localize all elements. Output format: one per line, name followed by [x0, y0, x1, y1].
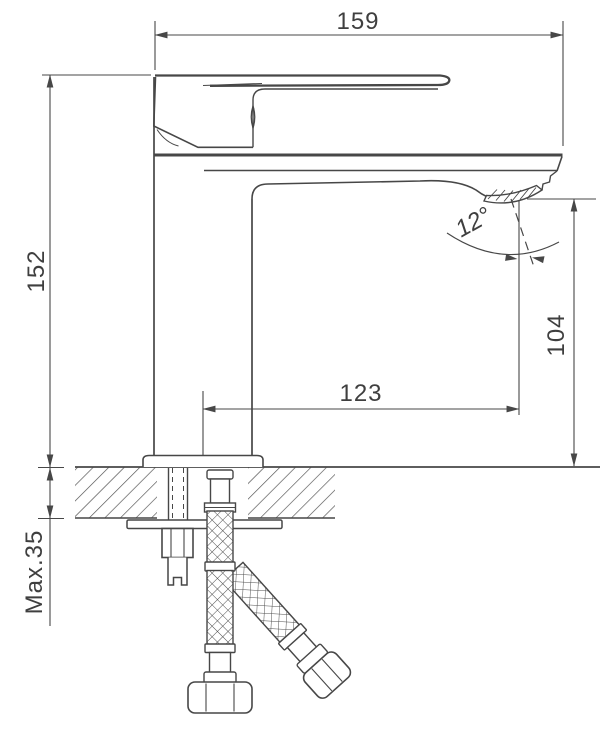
dim-label-spout-angle: 12°	[451, 202, 496, 243]
handle-back-profile	[154, 77, 253, 147]
stud-slotted-end	[168, 558, 187, 586]
aerator	[484, 186, 542, 203]
hose-ferrule	[205, 562, 235, 571]
arc-arrowhead	[531, 254, 544, 263]
spout-underside-curve	[252, 181, 498, 200]
counter-hatch-right	[248, 467, 335, 518]
cartridge-cover-line	[253, 89, 438, 147]
faucet-body	[143, 76, 563, 468]
spout-right-edge	[557, 157, 562, 172]
arc-arrowhead	[505, 254, 518, 263]
washer-plate	[127, 520, 282, 529]
hose-hex-nut	[188, 682, 252, 713]
spout	[154, 155, 563, 203]
dim-label-total-length: 159	[336, 8, 379, 35]
lever-plate	[155, 76, 449, 86]
dim-label-outlet-height: 104	[543, 313, 570, 356]
dim-152-height	[42, 75, 151, 467]
hose-braid	[207, 511, 233, 563]
spout-tip-profile	[542, 171, 557, 190]
handle-lever	[154, 76, 450, 148]
hose-ferrule	[205, 644, 235, 653]
counter-hatch-left	[75, 467, 157, 518]
dim-label-max-thickness: Max.35	[21, 530, 48, 615]
faucet-technical-drawing: 159 152 104 123 12° Max.35	[0, 0, 608, 729]
mounting-stud	[169, 468, 188, 520]
base-flange	[143, 456, 263, 468]
dim-159-total-length	[155, 21, 563, 146]
dim-label-body-height: 152	[23, 249, 50, 292]
hose-braid	[207, 571, 233, 645]
mounting-nut	[162, 529, 193, 586]
hose-braid	[224, 562, 300, 642]
hose-connector	[205, 470, 236, 512]
supply-hose-vertical	[188, 511, 252, 713]
countertop-section	[75, 467, 600, 518]
supply-hose-angled	[218, 557, 354, 701]
drawing-canvas: 159 152 104 123 12° Max.35	[0, 0, 608, 729]
dimension-labels: 159 152 104 123 12° Max.35	[21, 8, 570, 614]
dim-label-spout-reach: 123	[339, 380, 382, 407]
hose-tube	[210, 653, 231, 674]
